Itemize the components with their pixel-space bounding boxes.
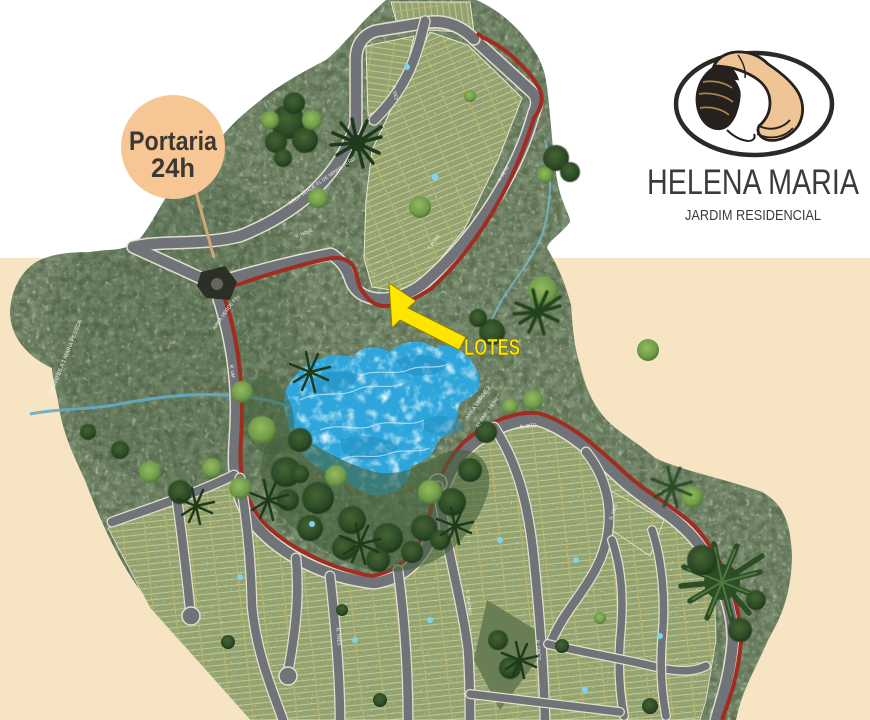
svg-text:HELENA MARIA: HELENA MARIA (647, 163, 860, 202)
svg-text:JARDIM RESIDENCIAL: JARDIM RESIDENCIAL (685, 207, 821, 224)
svg-text:24h: 24h (151, 153, 195, 183)
svg-text:LOTES: LOTES (464, 334, 520, 360)
svg-text:Portaria: Portaria (129, 126, 218, 156)
